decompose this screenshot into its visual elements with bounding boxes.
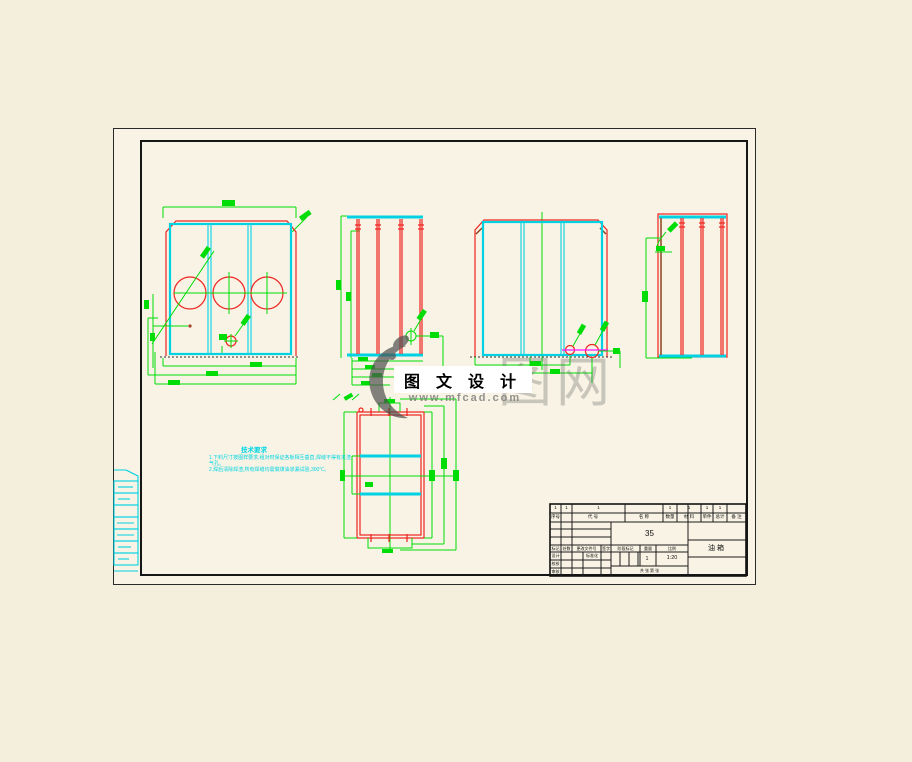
cad-screenshot-page: 技术要求 1.下料尺寸按图样要求,组对时保证各板相互垂直,焊缝不得有夹渣 气孔。… bbox=[0, 0, 912, 762]
rev-label: 标记 bbox=[550, 545, 561, 552]
sign-label: 校核 bbox=[550, 560, 561, 568]
sheet-count: 共 张 第 张 bbox=[611, 566, 688, 576]
notes-line-3: 2.焊后清除焊渣,所有焊缝均需做煤油渗漏试验,300℃。 bbox=[209, 467, 329, 473]
bom-qty: 1 bbox=[713, 504, 727, 513]
notes-heading: 技术要求 bbox=[241, 448, 351, 454]
view-side-left bbox=[336, 216, 443, 385]
scale-label: 比例 bbox=[656, 545, 688, 552]
bom-header: 材 料 bbox=[677, 513, 701, 522]
bom-header: 数量 bbox=[663, 513, 677, 522]
left-revision-strip bbox=[114, 470, 138, 571]
bom-header: 序号 bbox=[550, 513, 561, 522]
bom-qty: 1 bbox=[561, 504, 572, 513]
rev-label: 签字 bbox=[601, 545, 611, 552]
bom-header: 代 号 bbox=[561, 513, 625, 522]
rev-label: 更改文件号 bbox=[572, 545, 601, 552]
bom-qty: 1 bbox=[677, 504, 701, 513]
bom-qty: 1 bbox=[701, 504, 713, 513]
weight-label: 重量 bbox=[640, 545, 656, 552]
sign-label: 审核 bbox=[550, 568, 561, 576]
watermark-url: www.mfcad.com bbox=[398, 392, 532, 404]
technical-notes: 技术要求 1.下料尺寸按图样要求,组对时保证各板相互垂直,焊缝不得有夹渣 气孔。… bbox=[209, 448, 351, 473]
bom-header: 总计 bbox=[713, 513, 727, 522]
sign-label: 设计 bbox=[550, 552, 561, 560]
bom-qty: 1 bbox=[663, 504, 677, 513]
weight-value: 1 bbox=[638, 552, 656, 566]
bom-header: 备 注 bbox=[727, 513, 746, 522]
notes-line-1: 1.下料尺寸按图样要求,组对时保证各板相互垂直,焊缝不得有夹渣 bbox=[209, 455, 351, 461]
watermark-title: 图 文 设 计 bbox=[394, 366, 532, 393]
scale-value: 1:20 bbox=[656, 552, 688, 566]
material-value: 35 bbox=[611, 522, 688, 545]
bom-qty: 1 bbox=[550, 504, 561, 513]
view-front bbox=[144, 200, 312, 385]
std-label: 标准化 bbox=[583, 552, 601, 560]
rev-label: 处数 bbox=[561, 545, 572, 552]
part-name: 油箱 bbox=[688, 540, 746, 557]
bom-header: 名 称 bbox=[625, 513, 663, 522]
view-side-right bbox=[642, 214, 727, 358]
bom-qty: 1 bbox=[572, 504, 625, 513]
bom-header: 单件 bbox=[701, 513, 713, 522]
stage-label: 阶段标记 bbox=[611, 545, 640, 552]
